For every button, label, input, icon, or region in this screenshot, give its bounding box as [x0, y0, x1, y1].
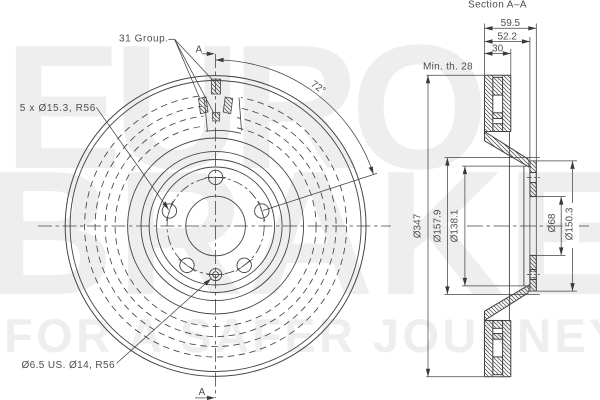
svg-text:Ø68: Ø68	[547, 213, 558, 232]
svg-text:52.2: 52.2	[497, 32, 517, 43]
svg-text:30: 30	[492, 44, 504, 55]
svg-text:31 Group.: 31 Group.	[119, 34, 168, 45]
svg-text:Section A–A: Section A–A	[468, 0, 527, 11]
svg-text:59.5: 59.5	[501, 18, 521, 29]
svg-text:Min. th. 28: Min. th. 28	[423, 62, 473, 73]
svg-text:A: A	[196, 44, 203, 55]
svg-text:5 x Ø15.3, R56: 5 x Ø15.3, R56	[20, 103, 96, 114]
svg-text:Ø138.1: Ø138.1	[450, 209, 461, 242]
svg-text:Ø157.9: Ø157.9	[433, 209, 444, 242]
svg-text:A: A	[199, 387, 206, 398]
svg-text:Ø347: Ø347	[412, 213, 423, 238]
svg-text:Ø6.5 US. Ø14, R56: Ø6.5 US. Ø14, R56	[22, 360, 115, 371]
svg-text:Ø150.3: Ø150.3	[565, 207, 576, 240]
